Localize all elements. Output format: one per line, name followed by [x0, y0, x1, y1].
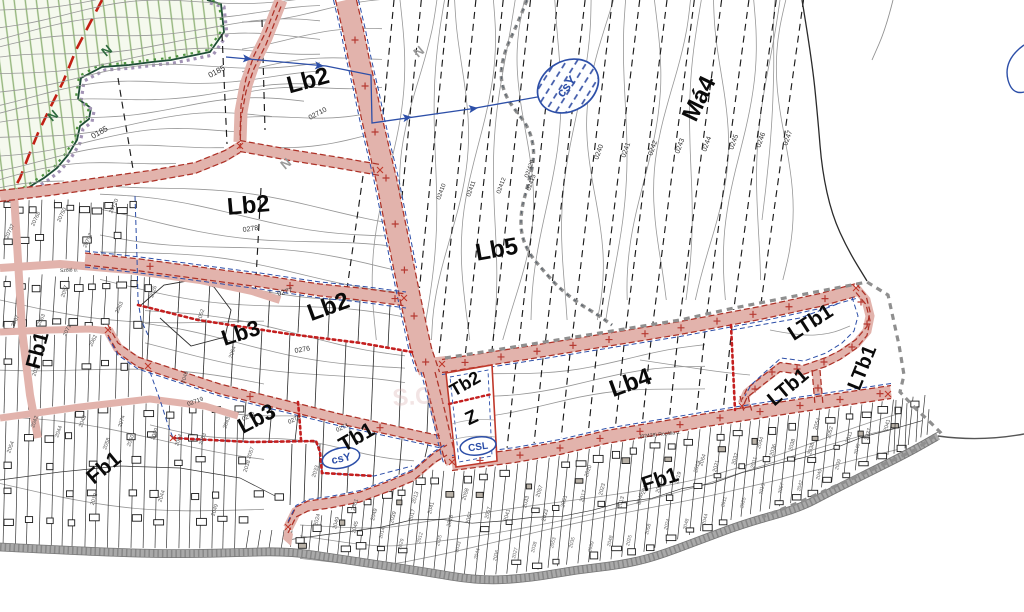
- svg-text:Lb2: Lb2: [226, 190, 271, 221]
- svg-text:Szőlő u.: Szőlő u.: [60, 267, 78, 274]
- svg-text:S.C..: S.C..: [392, 381, 447, 412]
